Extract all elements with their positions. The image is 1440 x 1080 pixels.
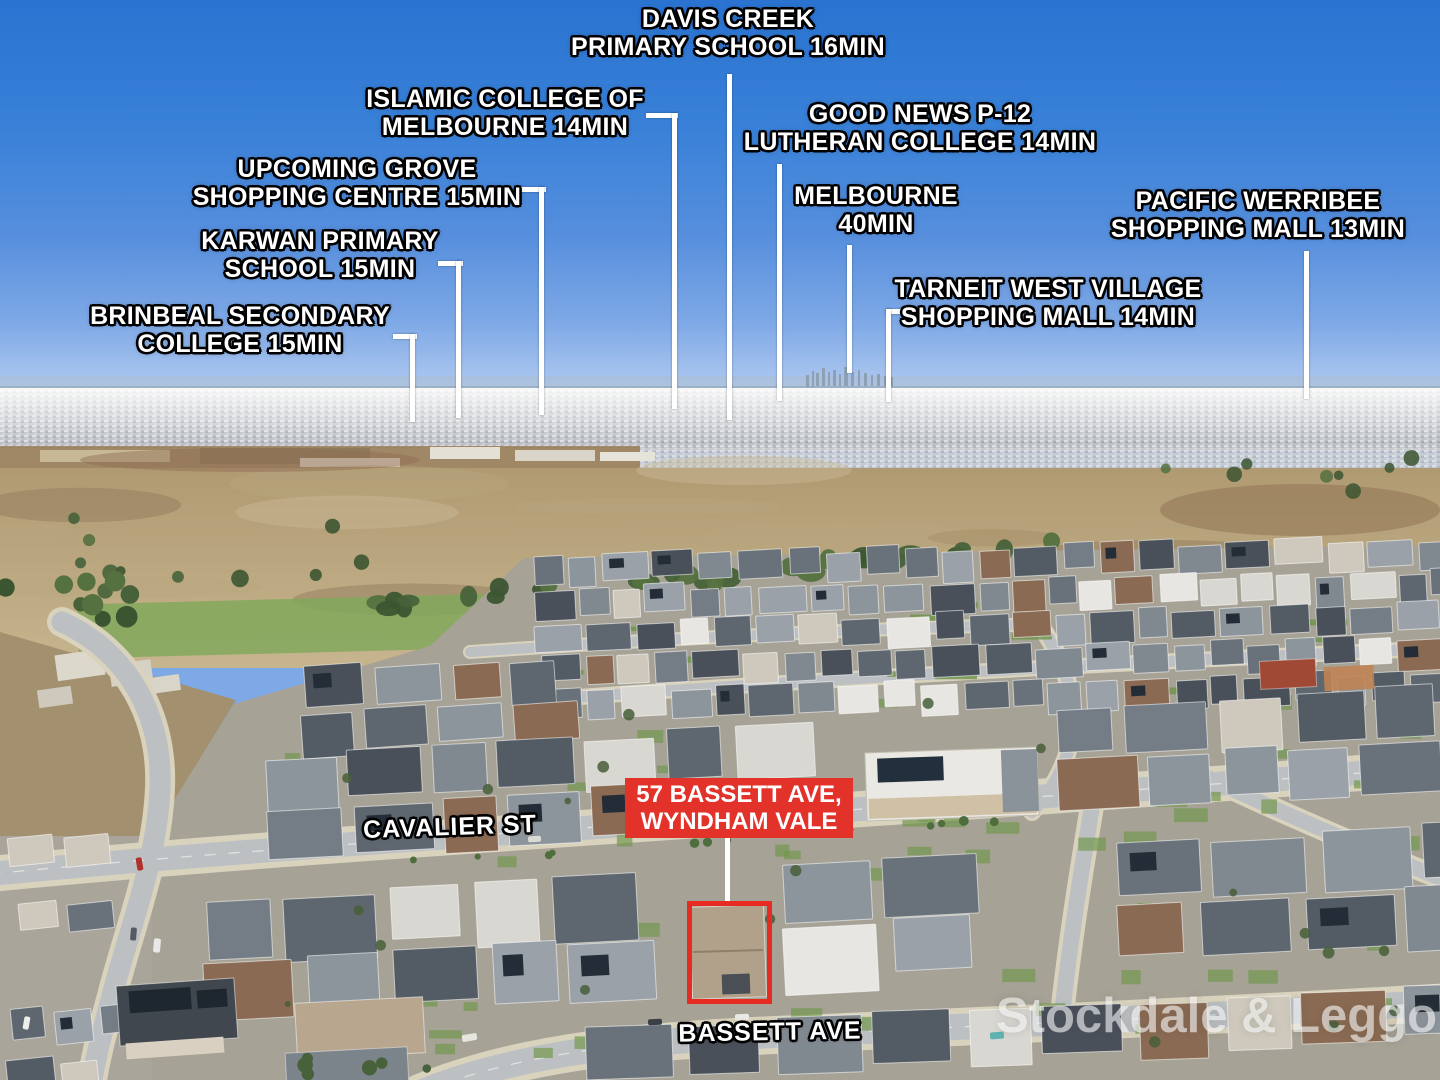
location-label-islamic-college: ISLAMIC COLLEGE OF MELBOURNE 14MIN [366, 85, 644, 141]
property-connector-line [725, 838, 730, 904]
annotation-line-melbourne [847, 245, 852, 373]
property-address-line: WYNDHAM VALE [641, 808, 838, 835]
property-address-line: 57 BASSETT AVE, [636, 781, 841, 808]
location-label-pacific-werribee: PACIFIC WERRIBEE SHOPPING MALL 13MIN [1111, 187, 1405, 243]
annotation-line-davis-creek [727, 74, 732, 420]
location-label-line: LUTHERAN COLLEGE 14MIN [744, 128, 1096, 156]
location-label-upcoming-grove: UPCOMING GROVE SHOPPING CENTRE 15MIN [193, 155, 522, 211]
property-address-label: 57 BASSETT AVE, WYNDHAM VALE [625, 778, 853, 838]
location-label-line: DAVIS CREEK [571, 5, 885, 33]
location-label-karwan: KARWAN PRIMARY SCHOOL 15MIN [201, 227, 439, 283]
street-label-bassett: BASSETT AVE [678, 1016, 862, 1048]
annotation-line-karwan [456, 261, 461, 418]
location-label-line: MELBOURNE 14MIN [366, 113, 644, 141]
location-label-melbourne: MELBOURNE 40MIN [794, 182, 958, 238]
aerial-annotation-image: DAVIS CREEK PRIMARY SCHOOL 16MIN ISLAMIC… [0, 0, 1440, 1080]
location-label-line: BRINBEAL SECONDARY [90, 302, 390, 330]
agency-watermark-logo: Stockdale & Leggo [996, 988, 1437, 1044]
annotation-line-brinbeal [410, 334, 415, 422]
location-label-line: MELBOURNE [794, 182, 958, 210]
location-label-line: GOOD NEWS P-12 [744, 100, 1096, 128]
street-label-cavalier: CAVALIER ST [363, 810, 538, 845]
annotation-line-pacific-werribee [1304, 251, 1309, 399]
property-outline-box [687, 901, 772, 1004]
location-label-line: SHOPPING MALL 13MIN [1111, 215, 1405, 243]
location-label-line: SHOPPING MALL 14MIN [895, 303, 1202, 331]
location-label-brinbeal: BRINBEAL SECONDARY COLLEGE 15MIN [90, 302, 390, 358]
location-label-line: 40MIN [794, 210, 958, 238]
location-label-line: TARNEIT WEST VILLAGE [895, 275, 1202, 303]
location-label-line: SCHOOL 15MIN [201, 255, 439, 283]
location-label-line: UPCOMING GROVE [193, 155, 522, 183]
annotation-line-islamic-college [672, 113, 677, 409]
location-label-line: PRIMARY SCHOOL 16MIN [571, 33, 885, 61]
location-label-line: SHOPPING CENTRE 15MIN [193, 183, 522, 211]
location-label-tarneit: TARNEIT WEST VILLAGE SHOPPING MALL 14MIN [895, 275, 1202, 331]
annotation-line-good-news [777, 164, 782, 401]
location-label-line: ISLAMIC COLLEGE OF [366, 85, 644, 113]
location-label-line: COLLEGE 15MIN [90, 330, 390, 358]
annotation-line-upcoming-grove [539, 187, 544, 415]
location-label-good-news: GOOD NEWS P-12 LUTHERAN COLLEGE 14MIN [744, 100, 1096, 156]
location-label-davis-creek: DAVIS CREEK PRIMARY SCHOOL 16MIN [571, 5, 885, 61]
location-label-line: PACIFIC WERRIBEE [1111, 187, 1405, 215]
location-label-line: KARWAN PRIMARY [201, 227, 439, 255]
annotation-line-tarneit [886, 309, 891, 402]
